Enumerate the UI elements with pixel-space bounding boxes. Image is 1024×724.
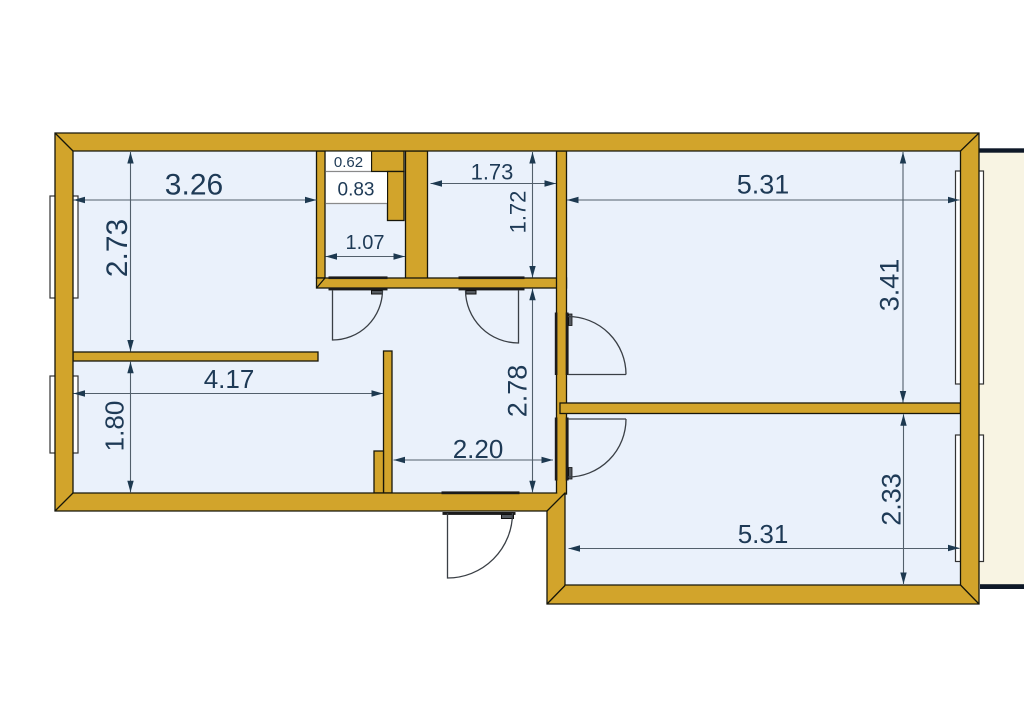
svg-text:1.80: 1.80 <box>100 401 130 452</box>
svg-text:0.83: 0.83 <box>338 180 375 201</box>
svg-text:2.78: 2.78 <box>503 365 533 418</box>
svg-text:3.26: 3.26 <box>165 169 223 202</box>
svg-text:2.73: 2.73 <box>101 219 134 277</box>
svg-text:1.07: 1.07 <box>346 232 385 254</box>
svg-text:5.31: 5.31 <box>738 519 789 549</box>
svg-text:0.62: 0.62 <box>334 154 363 171</box>
svg-text:4.17: 4.17 <box>204 364 255 394</box>
svg-text:2.33: 2.33 <box>877 473 907 526</box>
svg-text:3.41: 3.41 <box>875 259 905 312</box>
svg-text:2.20: 2.20 <box>453 434 504 464</box>
svg-text:5.31: 5.31 <box>737 170 790 200</box>
svg-text:1.72: 1.72 <box>506 191 531 234</box>
svg-text:1.73: 1.73 <box>471 160 514 185</box>
